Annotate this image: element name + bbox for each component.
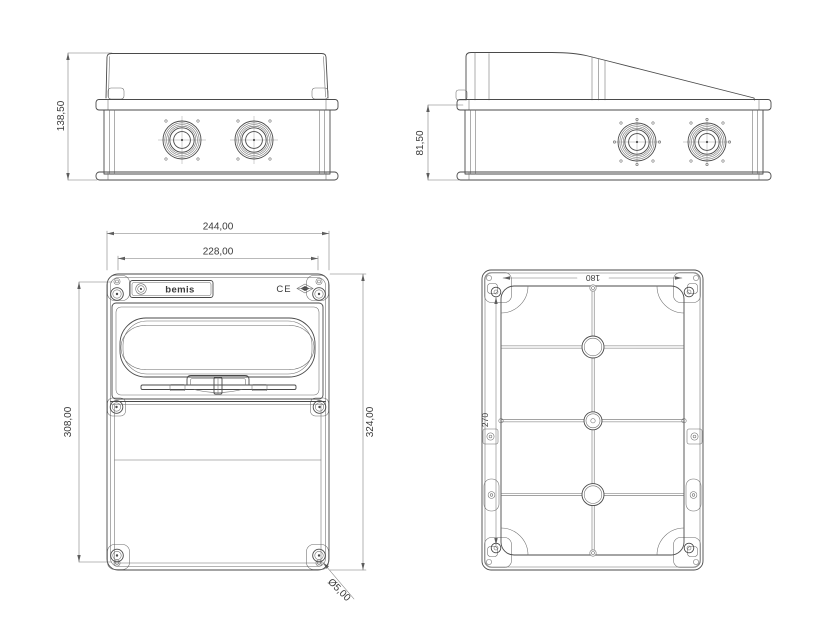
side-mount-lug — [484, 479, 499, 511]
hinge-pin — [316, 278, 322, 284]
enclosure-drawing-canvas: 138,50 — [0, 0, 825, 625]
hinge-pin — [114, 278, 120, 284]
dim-side-short-height: 81,50 — [415, 105, 463, 180]
lid-screw — [110, 401, 123, 414]
dim-front-hole-diameter: Ø5,00 — [323, 563, 354, 605]
side-long-flange — [96, 100, 338, 111]
dim-label-height-270: 270 — [480, 413, 490, 427]
view-front: 244,00 228,00 308,00 324,00 — [63, 222, 376, 605]
brand-label: bemis — [165, 285, 194, 296]
lid-screw — [313, 288, 326, 301]
keyhole-slot — [488, 284, 501, 297]
rib-end-hole — [590, 285, 596, 291]
dim-label-height-32400: 324,00 — [365, 406, 376, 437]
dim-label-height-30800: 308,00 — [63, 406, 74, 437]
side-short-flange — [457, 100, 771, 111]
corner-pin-hole — [693, 559, 698, 564]
side-long-body — [96, 110, 338, 180]
corner-pin-hole — [486, 275, 491, 280]
keyhole-slot — [684, 543, 697, 556]
side-short-lid — [456, 53, 755, 101]
lid-screw — [313, 401, 326, 414]
lid-screw — [313, 549, 326, 562]
rib-end-hole — [590, 550, 596, 556]
side-long-lid — [106, 54, 328, 100]
mounting-boss — [584, 412, 602, 430]
dim-label-width-22800: 228,00 — [203, 247, 234, 258]
keyhole-slot — [488, 543, 501, 556]
dim-back-mounting-width: 180 — [503, 273, 682, 283]
mounting-boss — [582, 484, 604, 506]
cable-knockout — [683, 118, 731, 166]
lid-screw — [111, 549, 124, 562]
view-back: 180 270 — [480, 270, 703, 570]
dim-label-width-180: 180 — [586, 273, 600, 283]
cable-knockout — [613, 118, 661, 166]
certification-diamond-icon — [297, 284, 313, 293]
lid-screw — [111, 288, 124, 301]
view-side-short: 81,50 — [415, 53, 771, 181]
side-mount-lug — [686, 479, 701, 511]
dim-label-height-13850: 138,50 — [56, 100, 67, 131]
cable-knockout — [230, 116, 278, 164]
dim-label-height-8150: 81,50 — [415, 130, 426, 155]
window-latch — [141, 376, 296, 395]
ce-mark-label: CE — [276, 284, 291, 295]
corner-pin-hole — [693, 275, 698, 280]
keyhole-slot — [684, 284, 697, 297]
brand-logo-icon — [136, 284, 147, 295]
front-body-seams — [111, 402, 326, 564]
brand-plate: bemis — [130, 281, 213, 298]
mounting-boss — [582, 336, 604, 358]
dim-front-mounting-height: 308,00 — [63, 282, 112, 562]
dim-front-overall-height: 324,00 — [330, 274, 376, 570]
view-side-long: 138,50 — [56, 53, 338, 180]
dim-label-hole-dia: Ø5,00 — [325, 577, 352, 604]
corner-pin-hole — [486, 559, 491, 564]
technical-drawing-sheet: 138,50 — [0, 0, 825, 625]
dim-label-width-24400: 244,00 — [203, 222, 234, 233]
dim-front-lid-width: 228,00 — [118, 247, 318, 271]
cable-knockout — [158, 116, 206, 164]
dim-back-mounting-height: 270 — [480, 297, 498, 545]
